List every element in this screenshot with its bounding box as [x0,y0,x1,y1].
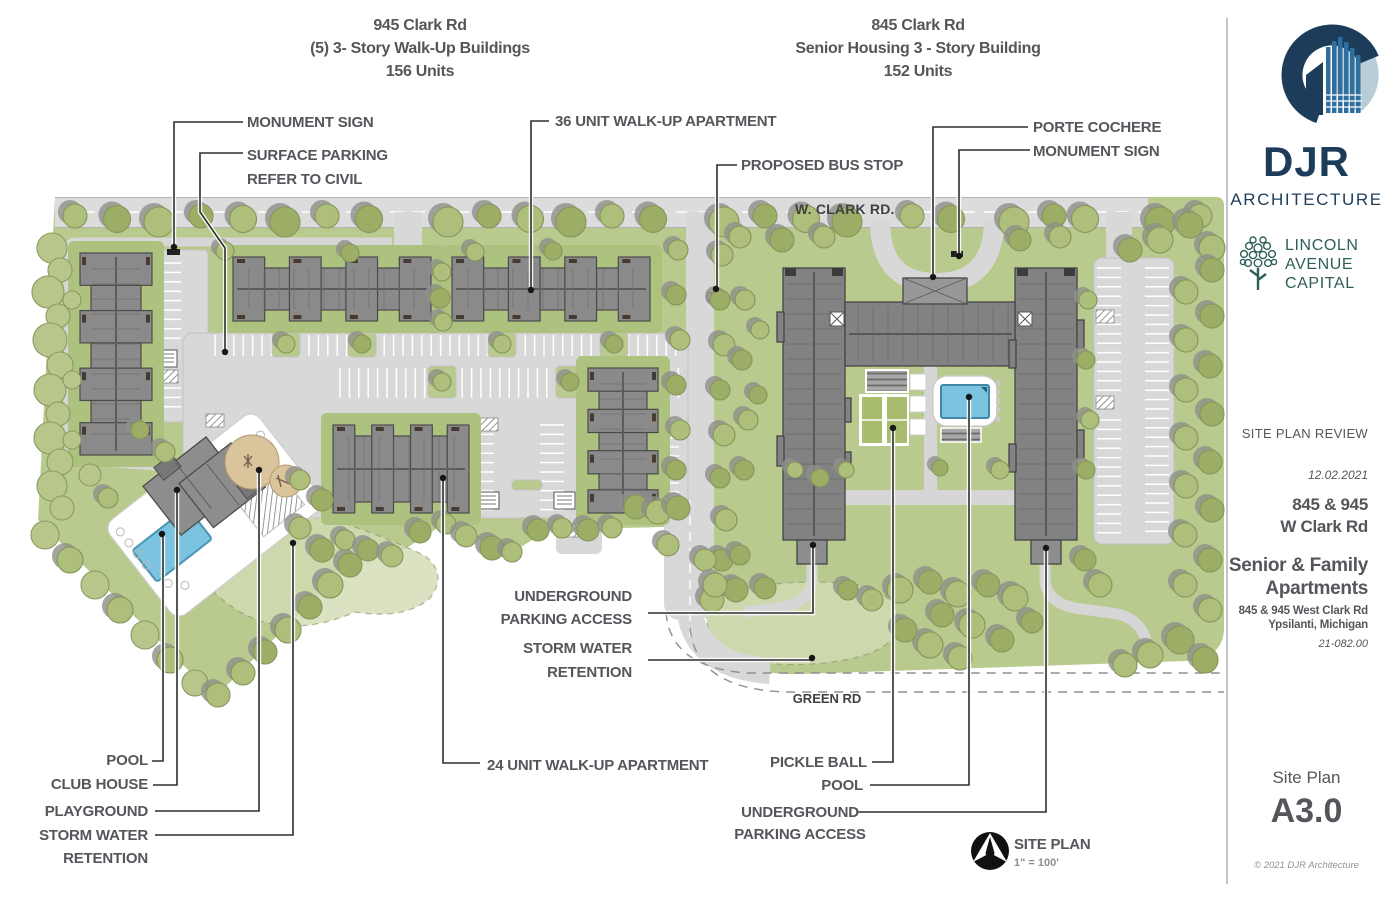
project-number: 21-082.00 [1228,638,1368,650]
header-945-line3: 156 Units [386,63,455,80]
sub-address-line1: 845 & 945 West Clark Rd [1228,604,1368,618]
sub-address-line2: Ypsilanti, Michigan [1228,618,1368,632]
courtyard-terraces [910,374,926,435]
label-walkup36: 36 UNIT WALK-UP APARTMENT [555,113,776,130]
label-w-clark-rd: W. CLARK RD. [795,201,895,217]
label-monument-left: MONUMENT SIGN [247,114,374,131]
project-sub-address: 845 & 945 West Clark Rd Ypsilanti, Michi… [1228,604,1368,632]
label-storm-left-2: RETENTION [63,850,148,867]
label-storm-mid-2: RETENTION [547,664,632,681]
site-plan-drawing: 945 Clark Rd (5) 3- Story Walk-Up Buildi… [0,0,1385,900]
label-underground-mid-1: UNDERGROUND [514,588,632,605]
label-monument-right: MONUMENT SIGN [1033,143,1160,160]
address-line2: W Clark Rd [1228,516,1368,538]
partner-line3: CAPITAL [1285,274,1359,293]
copyright: © 2021 DJR Architecture [1228,860,1385,871]
label-site-plan: SITE PLAN [1014,836,1091,853]
label-playground: PLAYGROUND [45,803,149,820]
label-storm-mid-1: STORM WATER [523,640,632,657]
pickle-ball-courts [859,394,909,446]
label-scale: 1" = 100' [1014,857,1059,869]
header-845-line3: 152 Units [884,63,953,80]
label-storm-left-1: STORM WATER [39,827,148,844]
pergola [866,370,908,392]
label-underground-bottom-1: UNDERGROUND [741,804,859,821]
label-walkup24: 24 UNIT WALK-UP APARTMENT [487,757,708,774]
djr-logo [1274,18,1385,136]
partner-logo-block: LINCOLN AVENUE CAPITAL [1236,232,1359,296]
label-underground-bottom-2: PARKING ACCESS [734,826,866,843]
label-club-house: CLUB HOUSE [51,776,148,793]
pool-845 [941,385,989,418]
label-surface-parking-2: REFER TO CIVIL [247,171,362,188]
issue-date: 12.02.2021 [1228,468,1368,482]
site-plan-sheet: 945 Clark Rd (5) 3- Story Walk-Up Buildi… [0,0,1385,900]
partner-line1: LINCOLN [1285,236,1359,255]
label-pool-right: POOL [821,777,863,794]
walkup-building [333,425,469,513]
label-green-rd: GREEN RD [793,691,862,706]
project-line2: Apartments [1228,577,1368,600]
label-pool-left: POOL [106,752,148,769]
firm-subtitle: ARCHITECTURE [1228,190,1385,210]
lincoln-tree-icon [1236,232,1280,296]
firm-name: DJR [1228,138,1385,186]
project-address: 845 & 945 W Clark Rd [1228,494,1368,538]
label-pickle-ball: PICKLE BALL [770,754,867,771]
project-line1: Senior & Family [1228,554,1368,577]
title-block: DJR ARCHITECTURE LINCOLN AVENUE CAPITAL … [1228,0,1385,900]
label-porte-cochere: PORTE COCHERE [1033,119,1161,136]
address-line1: 845 & 945 [1228,494,1368,516]
partner-name: LINCOLN AVENUE CAPITAL [1285,236,1359,293]
review-status: SITE PLAN REVIEW [1228,426,1368,441]
header-945-line1: 945 Clark Rd [373,17,466,34]
walkup-building [588,368,658,513]
header-945-line2: (5) 3- Story Walk-Up Buildings [310,40,530,57]
sheet-title: Site Plan [1228,768,1385,788]
sheet-number: A3.0 [1228,792,1385,831]
header-845-line1: 845 Clark Rd [871,17,964,34]
label-bus-stop: PROPOSED BUS STOP [741,157,903,174]
header-845-line2: Senior Housing 3 - Story Building [795,40,1040,57]
label-underground-mid-2: PARKING ACCESS [501,611,633,628]
label-surface-parking-1: SURFACE PARKING [247,147,388,164]
project-name: Senior & Family Apartments [1228,554,1368,600]
north-arrow [971,832,1009,870]
partner-line2: AVENUE [1285,255,1359,274]
